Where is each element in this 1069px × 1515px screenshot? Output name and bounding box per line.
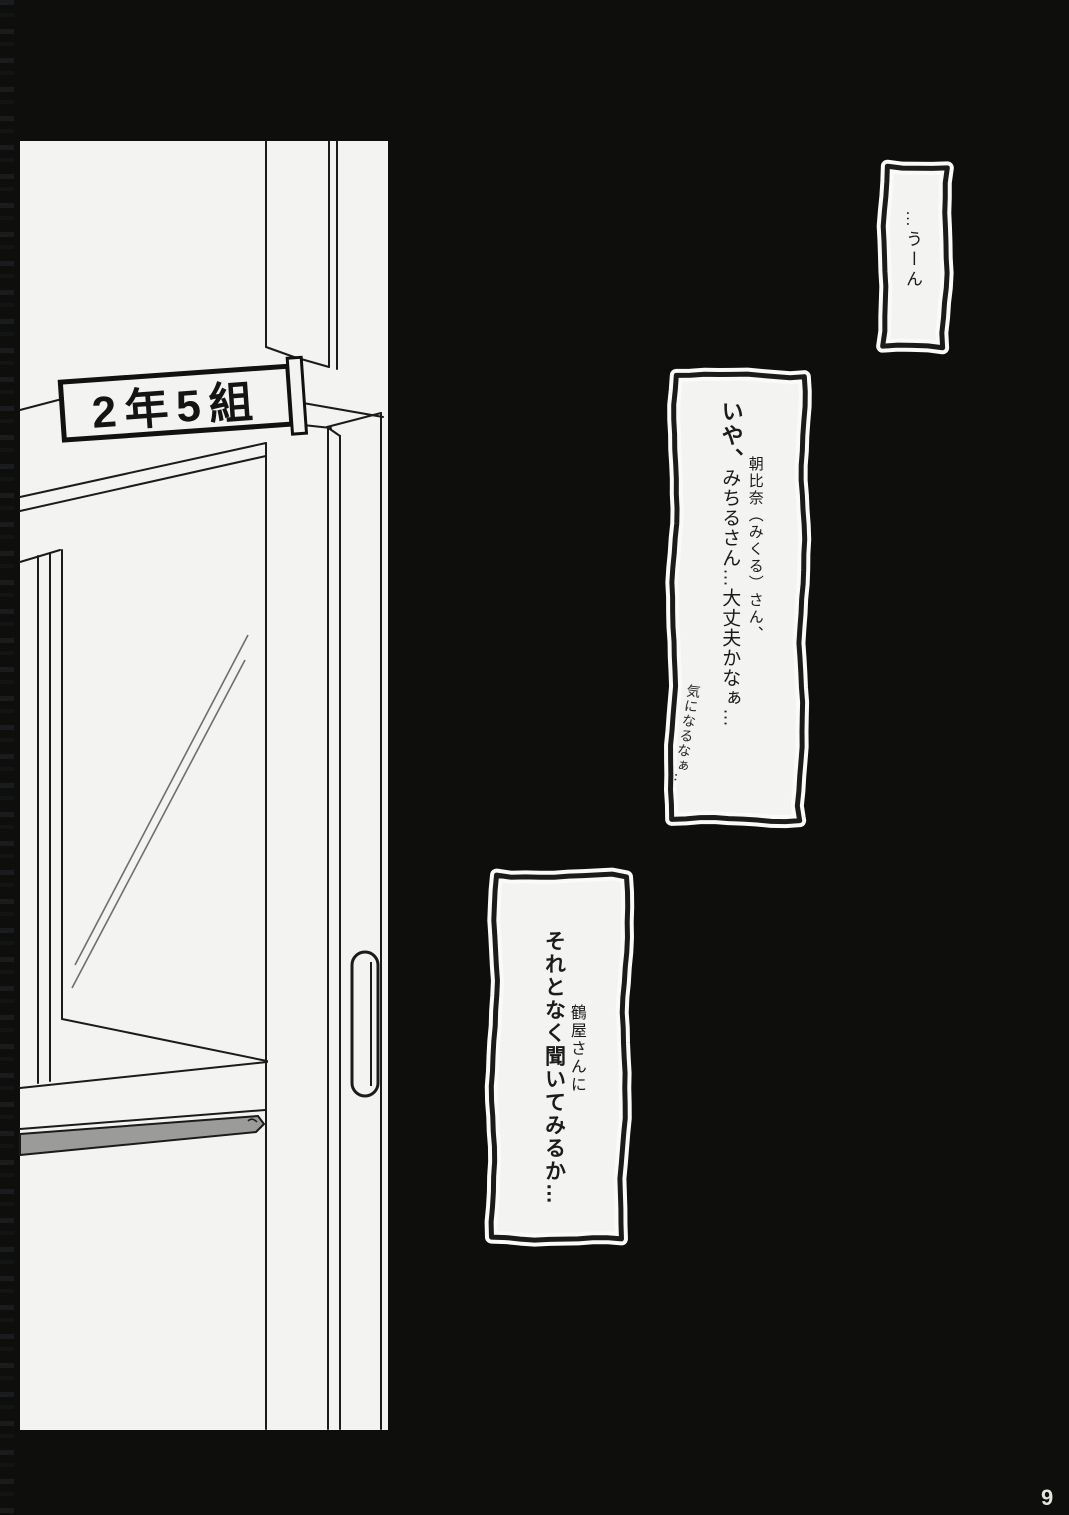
manga-page: 2年5組 …うーん いや、 朝比奈（みくる）さん、 みちるさん…大丈夫かなぁ… … xyxy=(0,0,1069,1515)
bubble2-text-line3: みちるさん…大丈夫かなぁ… xyxy=(719,468,740,728)
door-handle xyxy=(352,952,378,1096)
bubble1-text: …うーん xyxy=(903,210,922,290)
bubble3-text-line1: 鶴屋さんに xyxy=(567,1004,585,1094)
classroom-sign-label: 2年5組 xyxy=(60,366,291,440)
bubble2-text-line2: 朝比奈（みくる）さん、 xyxy=(746,456,763,643)
bubble2-text-line1: いや、 xyxy=(718,400,743,472)
bubble3-text-line2: それとなく聞いてみるか… xyxy=(542,930,566,1206)
page-number: 9 xyxy=(1041,1485,1053,1511)
classroom-door-illustration xyxy=(20,141,388,1430)
